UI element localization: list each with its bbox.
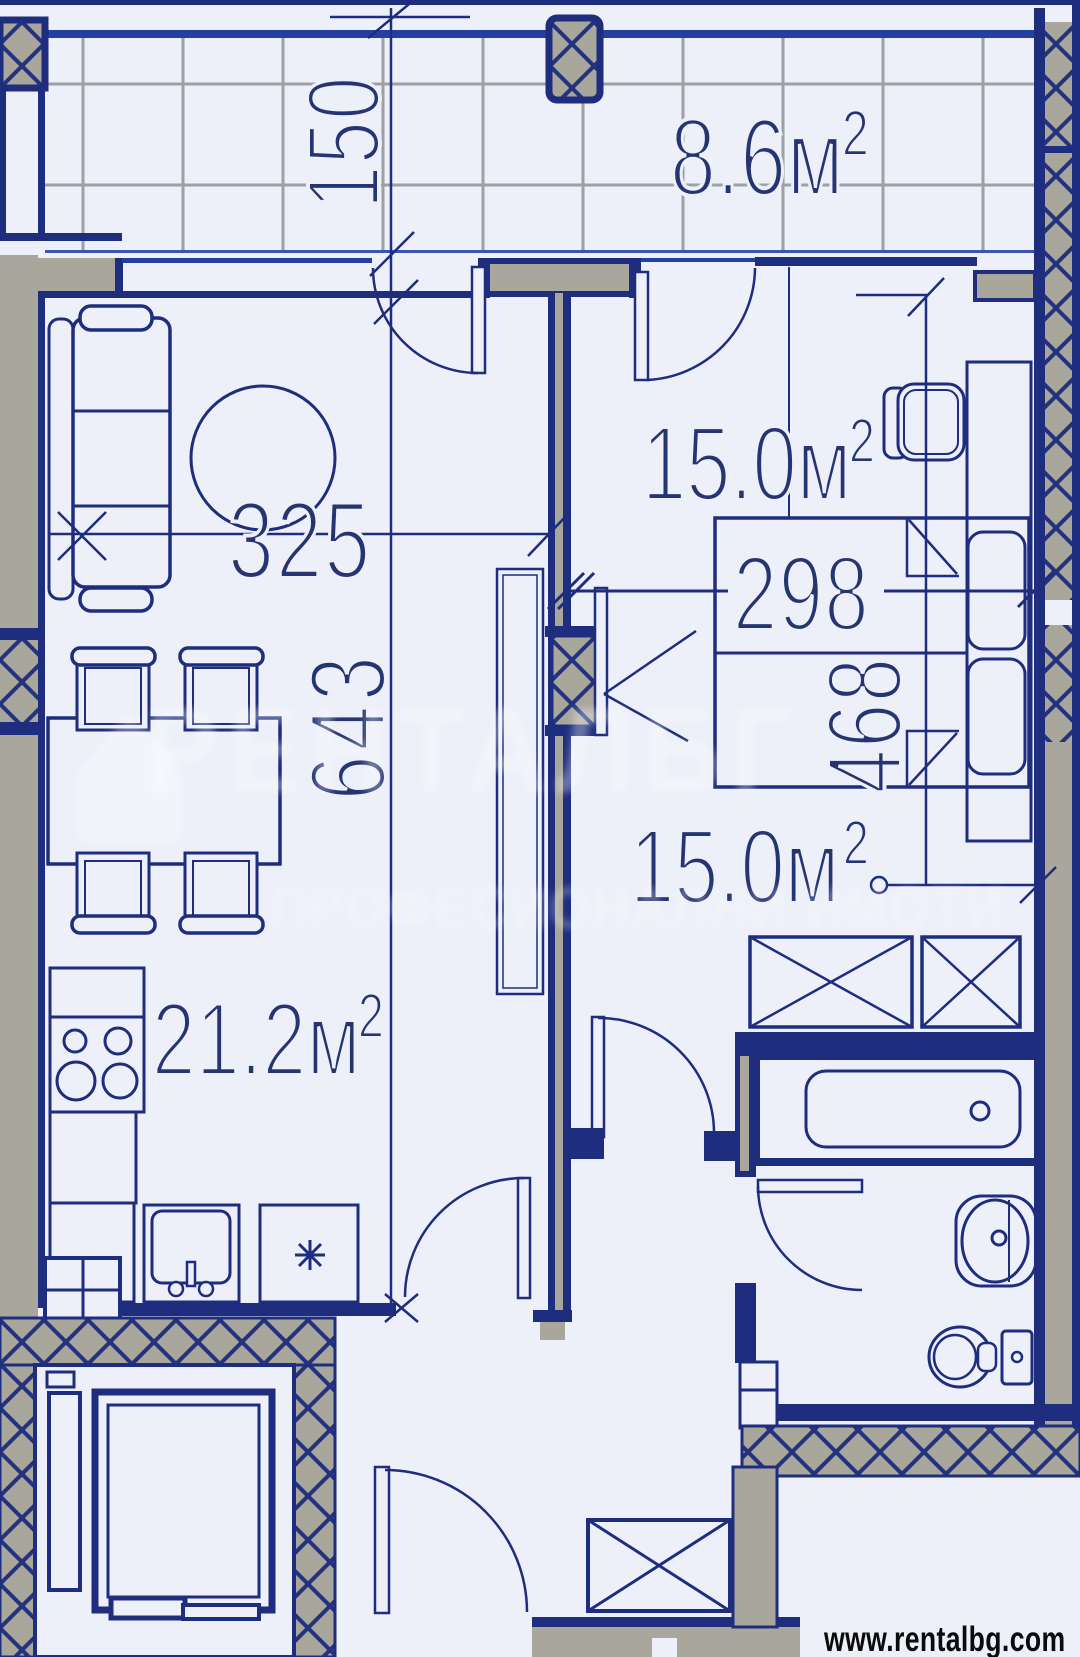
svg-text:2: 2 xyxy=(849,405,875,475)
svg-text:2: 2 xyxy=(358,980,384,1050)
svg-text:РЕНТАЛБГ: РЕНТАЛБГ xyxy=(145,682,802,819)
svg-text:2: 2 xyxy=(843,807,869,877)
svg-text:21.2м: 21.2м xyxy=(152,982,361,1097)
svg-text:2: 2 xyxy=(842,97,869,168)
svg-text:ПРОФЕСИОНАЛНИ ИМОТИ: ПРОФЕСИОНАЛНИ ИМОТИ xyxy=(270,875,1005,940)
svg-text:325: 325 xyxy=(228,478,372,601)
svg-text:298: 298 xyxy=(733,534,870,653)
svg-text:150: 150 xyxy=(287,75,401,208)
svg-text:468: 468 xyxy=(805,656,924,793)
svg-text:www.rentalbg.com: www.rentalbg.com xyxy=(823,1619,1065,1657)
svg-text:8.6м: 8.6м xyxy=(670,95,844,218)
svg-text:15.0м: 15.0м xyxy=(642,404,851,523)
